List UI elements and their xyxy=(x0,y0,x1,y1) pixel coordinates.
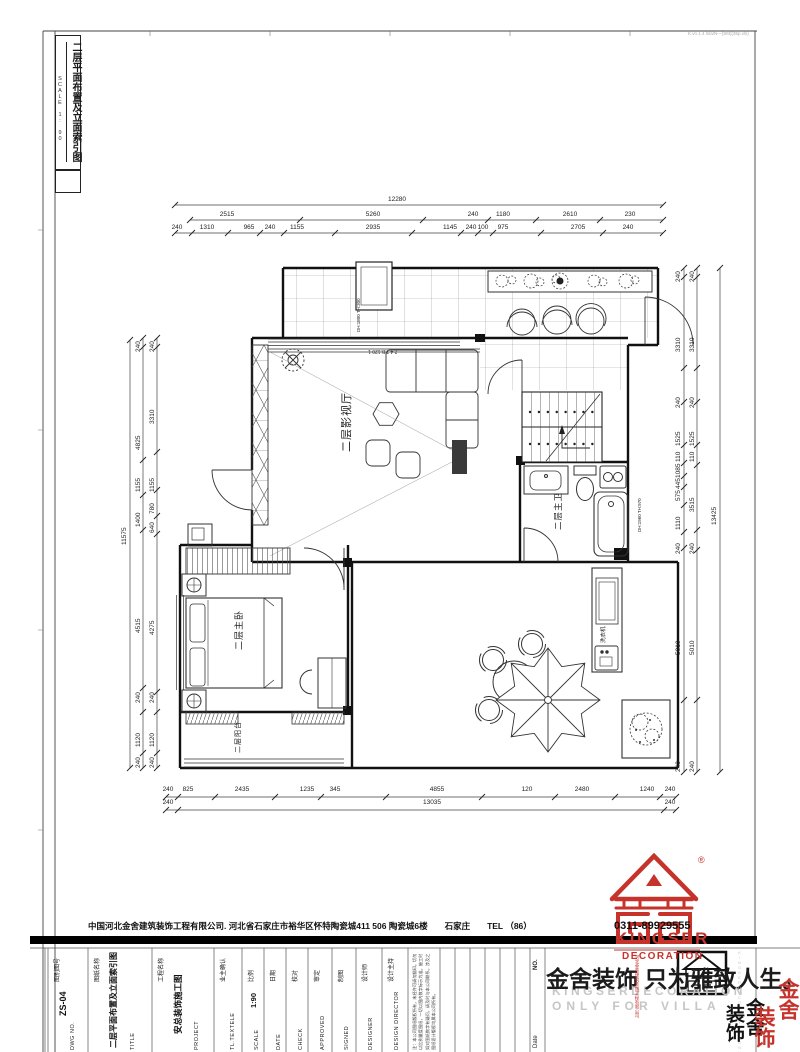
logo-kingser-text: KINGSER xyxy=(615,929,710,949)
drawing-sheet: 二层平面布置及立面索引图 SCALE 1: 90 K.vn 1.4 ls/a/N… xyxy=(0,0,800,1052)
field-value: ZS-04 xyxy=(58,991,68,1016)
dim-label: 240 xyxy=(675,271,682,282)
dim-label: 2705 xyxy=(571,224,585,231)
dim-label: 240 xyxy=(675,761,682,772)
room-label-bath: 二层主卫 xyxy=(552,492,564,530)
room-label-balcony: 二层阳台 xyxy=(233,721,243,753)
dim-label: 445 xyxy=(675,478,682,489)
field-cn: 业主确认 xyxy=(218,958,227,982)
dim-label: 120 xyxy=(522,786,533,793)
dim-label: 13425 xyxy=(711,507,718,525)
sheet-side-title: 二层平面布置及立面索引图 xyxy=(66,42,83,162)
dim-label: 1400 xyxy=(135,513,142,527)
dim-label: 240 xyxy=(468,211,479,218)
dim-label: 640 xyxy=(149,522,156,533)
dim-label: 1085 xyxy=(675,464,682,478)
dim-label: 5010 xyxy=(675,641,682,655)
dim-label: 11575 xyxy=(121,527,128,545)
dim-label: 240 xyxy=(623,224,634,231)
annotation-door: DH:1800 TH:300 xyxy=(356,298,361,332)
dim-label: 5260 xyxy=(366,211,380,218)
dim-label: 240 xyxy=(149,692,156,703)
dim-label: 1110 xyxy=(675,517,682,531)
dim-label: 1240 xyxy=(640,786,654,793)
sheet-title-box: 二层平面布置及立面索引图 SCALE 1: 90 xyxy=(55,35,81,171)
company-info-line: 中国河北金舍建筑装饰工程有限公司. 河北省石家庄市裕华区怀特陶瓷城411 506… xyxy=(88,920,532,932)
dim-label: 4515 xyxy=(135,619,142,633)
field-en: DESIGNER xyxy=(368,1017,374,1050)
dim-label: 240 xyxy=(689,397,696,408)
room-label-media: 二层影视厅 xyxy=(338,392,354,452)
dim-label: 12280 xyxy=(388,196,406,203)
dim-label: 965 xyxy=(244,224,255,231)
dim-label: 240 xyxy=(689,761,696,772)
field-cn: 设计师 xyxy=(360,964,369,982)
field-en: TITLE xyxy=(130,1033,136,1050)
dim-label: 240 xyxy=(675,543,682,554)
field-en: SIGNED xyxy=(344,1026,350,1050)
field-cn: 工程名称 xyxy=(156,958,165,982)
field-cn: 校对 xyxy=(290,970,299,982)
dim-label: 2610 xyxy=(563,211,577,218)
corner-note: K.vn 1.4 ls/a/N—(SM)(35p.vls) xyxy=(688,31,749,36)
dim-label: 13035 xyxy=(423,799,441,806)
dim-label: 240 xyxy=(149,757,156,768)
dim-label: 1525 xyxy=(675,432,682,446)
dim-label: 4855 xyxy=(430,786,444,793)
registered-mark: ® xyxy=(698,855,705,865)
dim-label: 1120 xyxy=(149,733,156,747)
brand-black-col2: 装饰 xyxy=(720,1004,747,1042)
annotation-bath: DH:1960 TH:970 xyxy=(637,498,642,532)
field-en: SCALE xyxy=(254,1029,260,1050)
dim-label: 240 xyxy=(675,397,682,408)
dim-label: 240 xyxy=(265,224,276,231)
field-value: 二层平面布置及立面索引图 xyxy=(108,952,119,1048)
dim-label: 1155 xyxy=(290,224,304,231)
dim-label: 240 xyxy=(665,799,676,806)
dim-label: 240 xyxy=(163,786,174,793)
dim-label: 230 xyxy=(625,211,636,218)
dim-label: 1120 xyxy=(135,733,142,747)
field-en: DWG NO. xyxy=(70,1022,76,1050)
dim-label: 3310 xyxy=(675,338,682,352)
field-en: TL.TEXTELE xyxy=(230,1013,236,1050)
dim-label: 240 xyxy=(466,224,477,231)
dim-label: 3310 xyxy=(149,410,156,424)
dim-label: 240 xyxy=(665,786,676,793)
dim-label: 240 xyxy=(689,271,696,282)
dim-label: 4825 xyxy=(135,436,142,450)
dim-label: 240 xyxy=(135,692,142,703)
dim-label: 110 xyxy=(689,452,696,462)
dim-label: 5010 xyxy=(689,641,696,655)
dim-label: 240 xyxy=(163,799,174,806)
dim-label: 1235 xyxy=(300,786,314,793)
field-value: 1:90 xyxy=(249,993,258,1008)
annotation-washer: 洗衣机 xyxy=(599,626,607,643)
field-en: DESIGN DIRECTOR xyxy=(394,991,400,1050)
dim-label: 1310 xyxy=(200,224,214,231)
sheet-side-scale: SCALE 1: 90 xyxy=(57,76,63,142)
dim-label: 975 xyxy=(498,224,509,231)
dim-label: 825 xyxy=(183,786,194,793)
revision-no-header: NO. xyxy=(533,959,539,970)
dim-label: 4275 xyxy=(149,621,156,635)
room-label-bedroom: 二层主卧 xyxy=(232,610,245,650)
revision-date-header: Date xyxy=(533,1035,539,1048)
watermark-slogan: 金舍装饰 只为雅致人生。 xyxy=(546,960,800,994)
field-cn: 制图 xyxy=(336,970,345,982)
field-en: DATE xyxy=(276,1034,282,1050)
dim-label: 3310 xyxy=(689,338,696,352)
dim-label: 240 xyxy=(689,543,696,554)
field-cn: 图别图号 xyxy=(52,958,61,982)
dim-label: 1525 xyxy=(689,432,696,446)
annotation-window: 2.4 T.B.120 1 xyxy=(368,348,397,354)
brand-red-col2: 装饰 xyxy=(748,1006,778,1048)
field-cn: 日期 xyxy=(268,970,277,982)
dim-label: 3515 xyxy=(689,498,696,512)
dim-label: 1145 xyxy=(443,224,457,231)
side-red-company-text: 河北金舍建筑装饰工程有限公司 xyxy=(634,955,640,1018)
dim-label: 1155 xyxy=(149,478,156,492)
dim-label: 2935 xyxy=(366,224,380,231)
title-block-notes: 注：本公司图纸版权所有，未经许可请勿翻印。切勿以比例量度图纸，一切以图内数字标示… xyxy=(412,950,437,1050)
field-cn: 比例 xyxy=(246,970,255,982)
dim-label: 575 xyxy=(675,490,682,501)
field-en: APPROVED xyxy=(320,1015,326,1050)
sheet-title-box-ext xyxy=(55,169,81,193)
field-cn: 设计主持 xyxy=(386,958,395,982)
dim-label: 240 xyxy=(135,341,142,352)
field-en: CHECK xyxy=(298,1028,304,1050)
dim-label: 1155 xyxy=(135,478,142,492)
dim-label: 240 xyxy=(172,224,183,231)
field-cn: 图纸名称 xyxy=(92,958,101,982)
dim-label: 2480 xyxy=(575,786,589,793)
dim-label: 780 xyxy=(149,503,156,514)
dim-label: 240 xyxy=(149,341,156,352)
dim-label: 110 xyxy=(675,452,682,462)
dim-label: 2515 xyxy=(220,211,234,218)
dim-label: 345 xyxy=(330,786,341,793)
dim-label: 1180 xyxy=(496,211,510,218)
dim-label: 240 xyxy=(135,757,142,768)
field-value: 安总装饰施工图 xyxy=(172,974,184,1034)
dim-label: 2435 xyxy=(235,786,249,793)
dim-label: 100 xyxy=(478,224,489,231)
field-en: PROJECT xyxy=(194,1021,200,1050)
field-cn: 审定 xyxy=(312,970,321,982)
